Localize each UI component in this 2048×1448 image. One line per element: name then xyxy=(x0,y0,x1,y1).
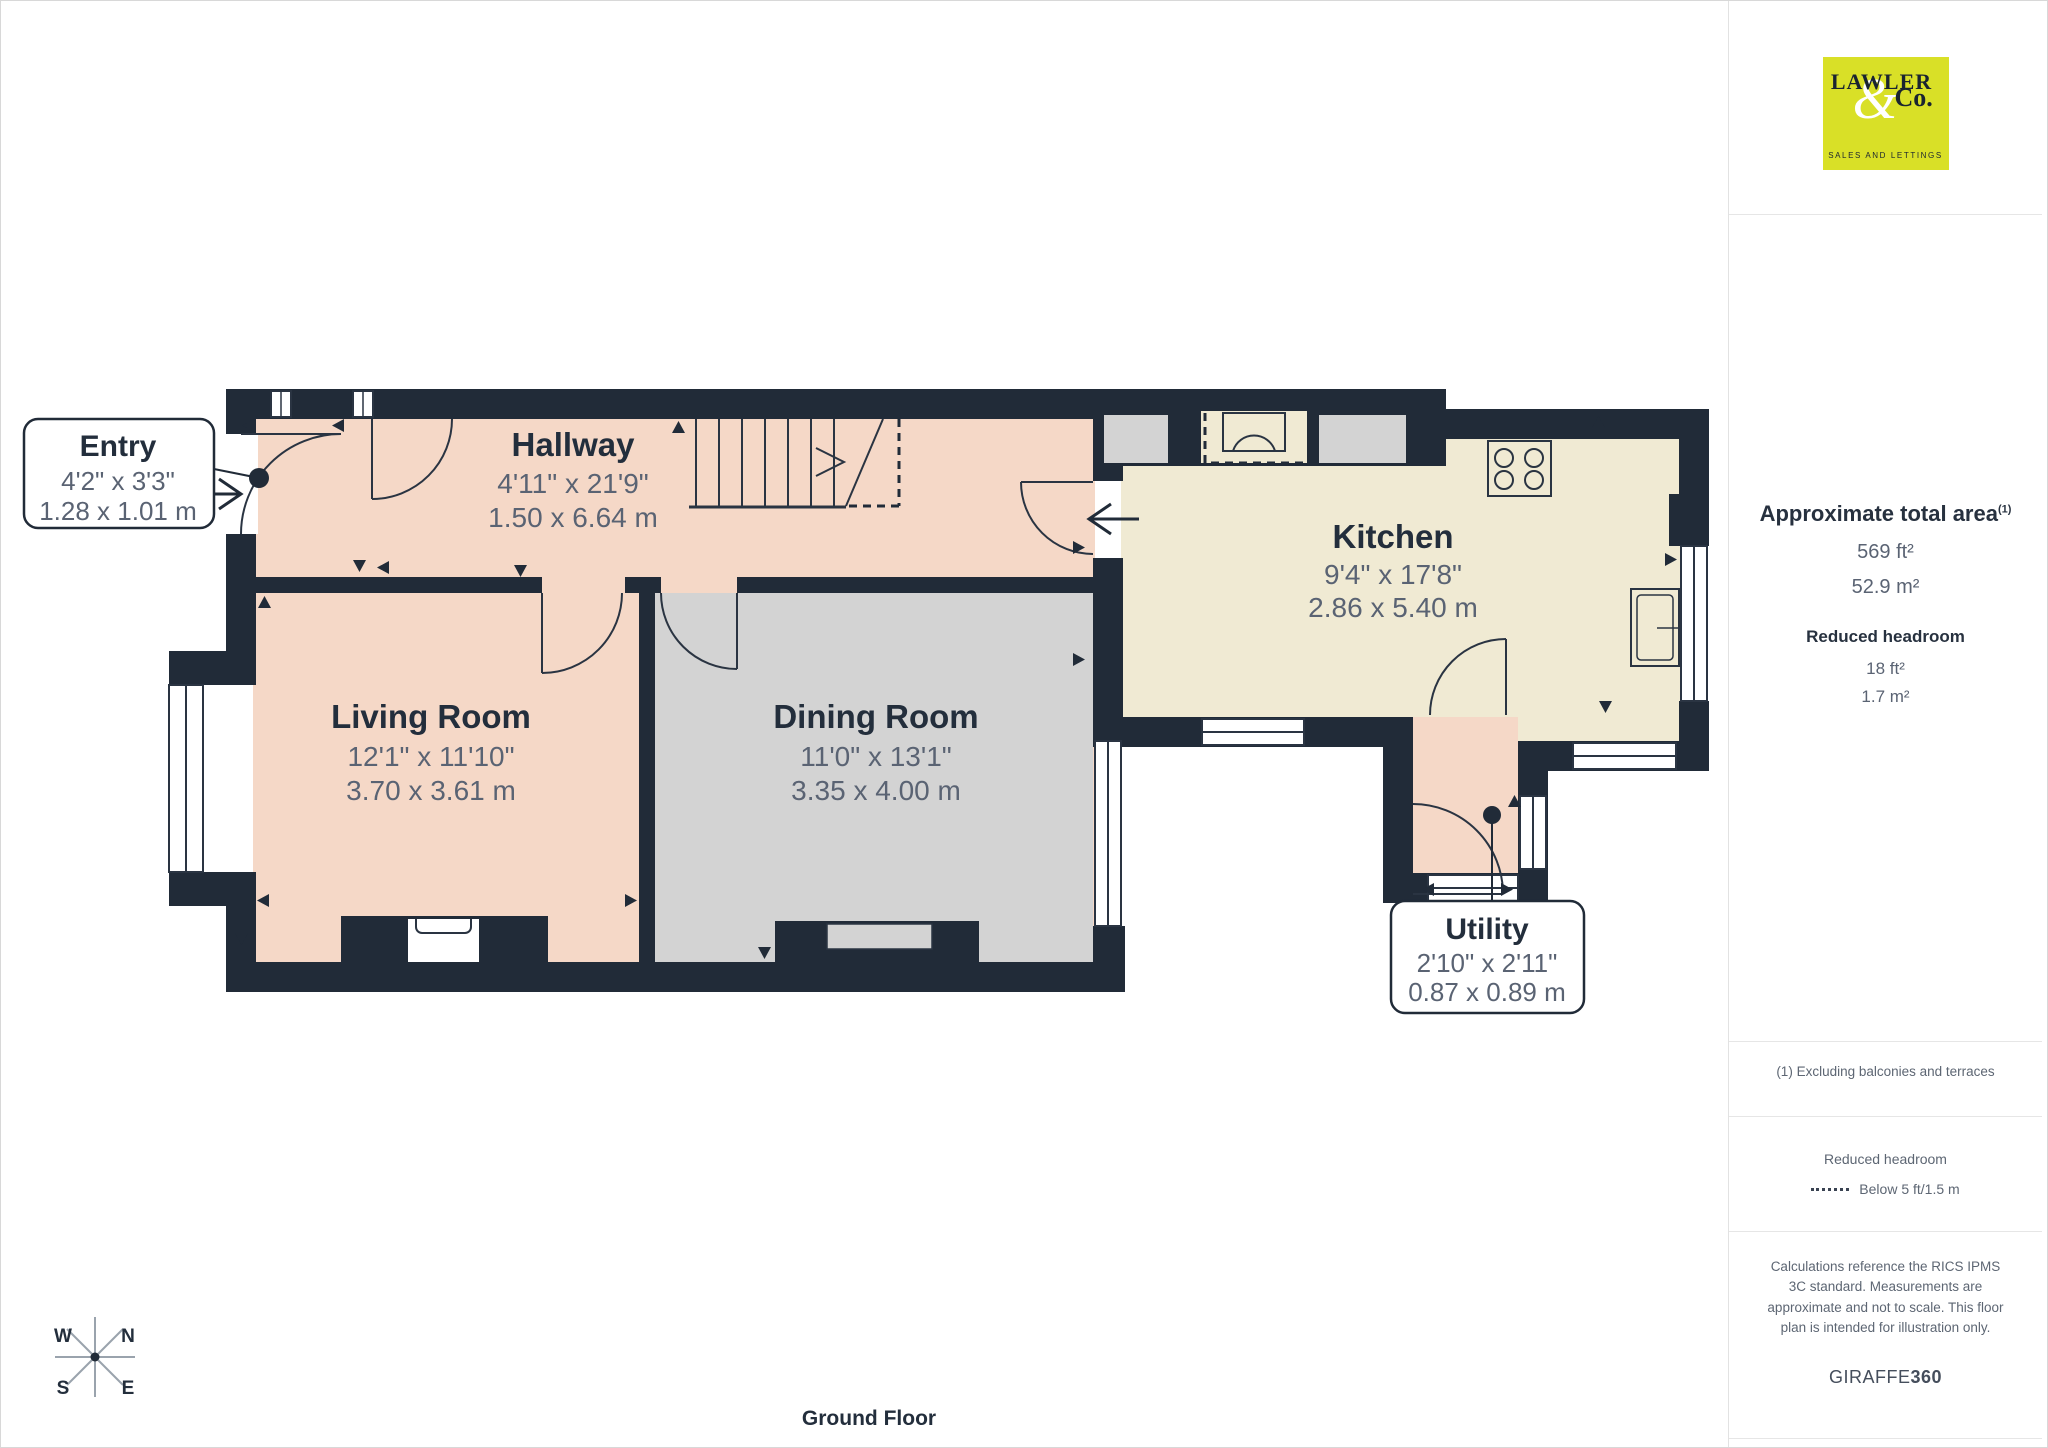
reduced-headroom-imperial: 18 ft² xyxy=(1729,659,2042,679)
divider xyxy=(1729,1438,2042,1439)
legend: Reduced headroom Below 5 ft/1.5 m xyxy=(1729,1151,2042,1197)
divider xyxy=(1729,1116,2042,1117)
agency-logo: & LAWLER Co. SALES AND LETTINGS xyxy=(1823,57,1949,170)
total-area-heading: Approximate total area(1) xyxy=(1729,501,2042,527)
reduced-headroom-heading: Reduced headroom xyxy=(1729,627,2042,647)
total-area-metric: 52.9 m² xyxy=(1729,576,2042,599)
disclaimer: Calculations reference the RICS IPMS 3C … xyxy=(1764,1257,2008,1391)
svg-text:1.50 x 6.64 m: 1.50 x 6.64 m xyxy=(488,502,658,533)
dining-alcove xyxy=(827,924,932,949)
svg-text:E: E xyxy=(122,1378,135,1399)
total-area-imperial: 569 ft² xyxy=(1729,541,2042,564)
svg-text:9'4" x 17'8": 9'4" x 17'8" xyxy=(1324,559,1462,590)
svg-text:4'2" x 3'3": 4'2" x 3'3" xyxy=(61,466,175,496)
brand-suffix: 360 xyxy=(1910,1367,1942,1387)
info-sidebar: & LAWLER Co. SALES AND LETTINGS Approxim… xyxy=(1728,1,2042,1447)
kitchen-label: Kitchen 9'4" x 17'8" 2.86 x 5.40 m xyxy=(1308,518,1478,623)
floor-title: Ground Floor xyxy=(802,1407,936,1430)
dashed-line-sample xyxy=(1811,1188,1849,1191)
svg-text:Entry: Entry xyxy=(80,430,157,463)
utility-leader-dot xyxy=(1483,806,1501,824)
compass-rose: W N S E xyxy=(54,1317,135,1399)
logo-co: Co. xyxy=(1895,83,1933,113)
svg-text:N: N xyxy=(121,1326,135,1347)
total-area-heading-text: Approximate total area xyxy=(1760,501,1998,526)
legend-heading: Reduced headroom xyxy=(1729,1151,2042,1167)
legend-label: Below 5 ft/1.5 m xyxy=(1859,1181,1959,1197)
svg-text:2.86 x 5.40 m: 2.86 x 5.40 m xyxy=(1308,592,1478,623)
area-summary: Approximate total area(1) 569 ft² 52.9 m… xyxy=(1729,501,2042,715)
divider xyxy=(1729,1231,2042,1232)
svg-text:Hallway: Hallway xyxy=(512,426,636,463)
living-fireplace xyxy=(408,919,479,962)
entry-leader-dot xyxy=(249,468,269,488)
living-room-label: Living Room 12'1" x 11'10" 3.70 x 3.61 m xyxy=(331,698,531,806)
floor-plan-page: Entry 4'2" x 3'3" 1.28 x 1.01 m Hallway … xyxy=(0,0,2048,1448)
svg-text:Kitchen: Kitchen xyxy=(1332,518,1453,555)
svg-text:3.70 x 3.61 m: 3.70 x 3.61 m xyxy=(346,775,516,806)
svg-text:12'1" x 11'10": 12'1" x 11'10" xyxy=(347,741,514,772)
svg-text:11'0" x 13'1": 11'0" x 13'1" xyxy=(800,741,951,772)
svg-text:0.87 x 0.89 m: 0.87 x 0.89 m xyxy=(1408,977,1566,1007)
svg-text:Living Room: Living Room xyxy=(331,698,531,735)
reduced-headroom-metric: 1.7 m² xyxy=(1729,687,2042,707)
sink-icon xyxy=(1631,589,1679,666)
divider xyxy=(1729,1041,2042,1042)
svg-text:3.35 x 4.00 m: 3.35 x 4.00 m xyxy=(791,775,961,806)
svg-text:Utility: Utility xyxy=(1445,913,1529,946)
dining-room-label: Dining Room 11'0" x 13'1" 3.35 x 4.00 m xyxy=(773,698,978,806)
svg-text:4'11" x 21'9": 4'11" x 21'9" xyxy=(497,468,648,499)
svg-text:2'10" x 2'11": 2'10" x 2'11" xyxy=(1417,948,1558,978)
hallway-label: Hallway 4'11" x 21'9" 1.50 x 6.64 m xyxy=(488,426,658,533)
svg-text:1.28 x 1.01 m: 1.28 x 1.01 m xyxy=(39,496,197,526)
disclaimer-text: Calculations reference the RICS IPMS 3C … xyxy=(1767,1259,2003,1335)
kitchen-alcoves xyxy=(1104,411,1406,463)
svg-text:Dining Room: Dining Room xyxy=(773,698,978,735)
logo-tagline: SALES AND LETTINGS xyxy=(1823,151,1949,160)
hob-icon xyxy=(1488,441,1551,496)
svg-text:S: S xyxy=(57,1378,70,1399)
brand-logo: GIRAFFE360 xyxy=(1764,1364,2008,1391)
footnote: (1) Excluding balconies and terraces xyxy=(1729,1064,2042,1079)
footnote-marker: (1) xyxy=(1998,504,2011,516)
divider xyxy=(1729,214,2042,215)
brand-name: GIRAFFE xyxy=(1829,1367,1911,1387)
svg-text:W: W xyxy=(54,1326,72,1347)
